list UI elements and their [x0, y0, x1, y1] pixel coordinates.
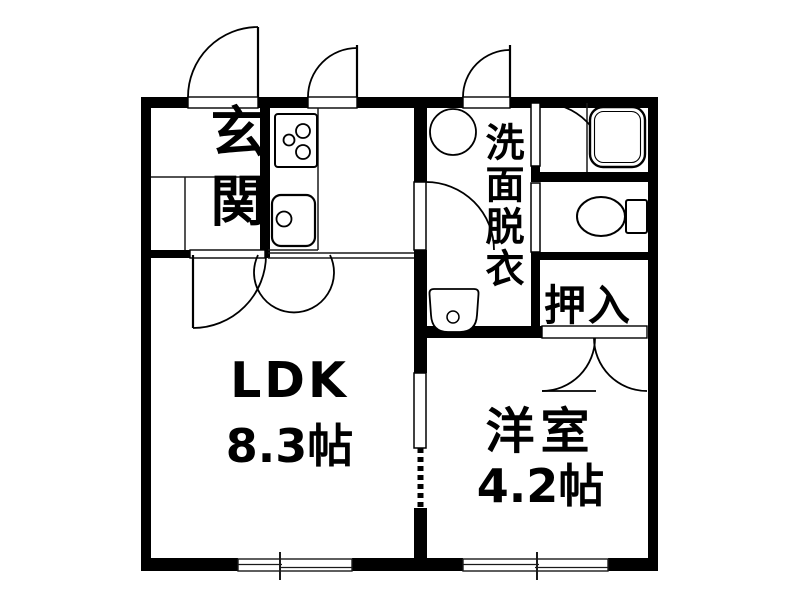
wall-genkan-bottom [141, 250, 190, 258]
genkan-ldk-threshold [190, 250, 265, 258]
washroom-top-door-threshold [463, 97, 510, 108]
youshitsu-window-icon [463, 552, 608, 580]
oshiire-door-arc-left [542, 338, 595, 391]
sliding-door-panel [414, 373, 426, 448]
kitchen-door-threshold [308, 97, 357, 108]
wall-center-upper [414, 108, 427, 182]
wall-bottom-1 [141, 558, 238, 571]
washroom-door-panel [414, 182, 426, 250]
wall-left [141, 97, 151, 571]
bath-door-panel [531, 103, 540, 166]
room-label-genkan: 玄関 [193, 103, 273, 241]
wall-toilet-oshiire [531, 252, 658, 260]
toilet-door-panel [531, 183, 540, 252]
room-size-youshitsu: 4.2帖 [458, 450, 623, 516]
washing-machine-icon [430, 109, 476, 155]
wall-top-1 [141, 97, 188, 108]
room-label-oshiire: 押入 [527, 272, 649, 333]
washroom-top-door-arc [463, 50, 510, 97]
kitchen-door-arc [308, 48, 357, 97]
entrance-door-arc [188, 27, 258, 97]
oshiire-door-arc-right [594, 338, 647, 391]
floor-plan-drawing [0, 0, 800, 600]
room-label-ldk: LDK [207, 352, 372, 409]
ldk-window-icon [238, 552, 352, 580]
wall-bottom-3 [608, 558, 658, 571]
bathtub-icon [590, 107, 645, 167]
stove-icon [275, 114, 317, 167]
wall-center-lower [414, 508, 427, 571]
sink-icon [272, 195, 315, 246]
room-size-ldk: 8.3帖 [207, 410, 372, 476]
wall-bath-toilet [531, 172, 658, 182]
washbasin-icon [429, 289, 478, 332]
wall-top-3 [357, 97, 463, 108]
toilet-icon [577, 197, 647, 236]
floor-plan: 玄関 洗面脱衣 LDK 8.3帖 洋室 4.2帖 押入 [0, 0, 800, 600]
wall-right [648, 97, 658, 571]
room-label-washroom: 洗面脱衣 [473, 122, 529, 290]
wall-center-middle [414, 250, 427, 373]
wall-bottom-2 [352, 558, 463, 571]
